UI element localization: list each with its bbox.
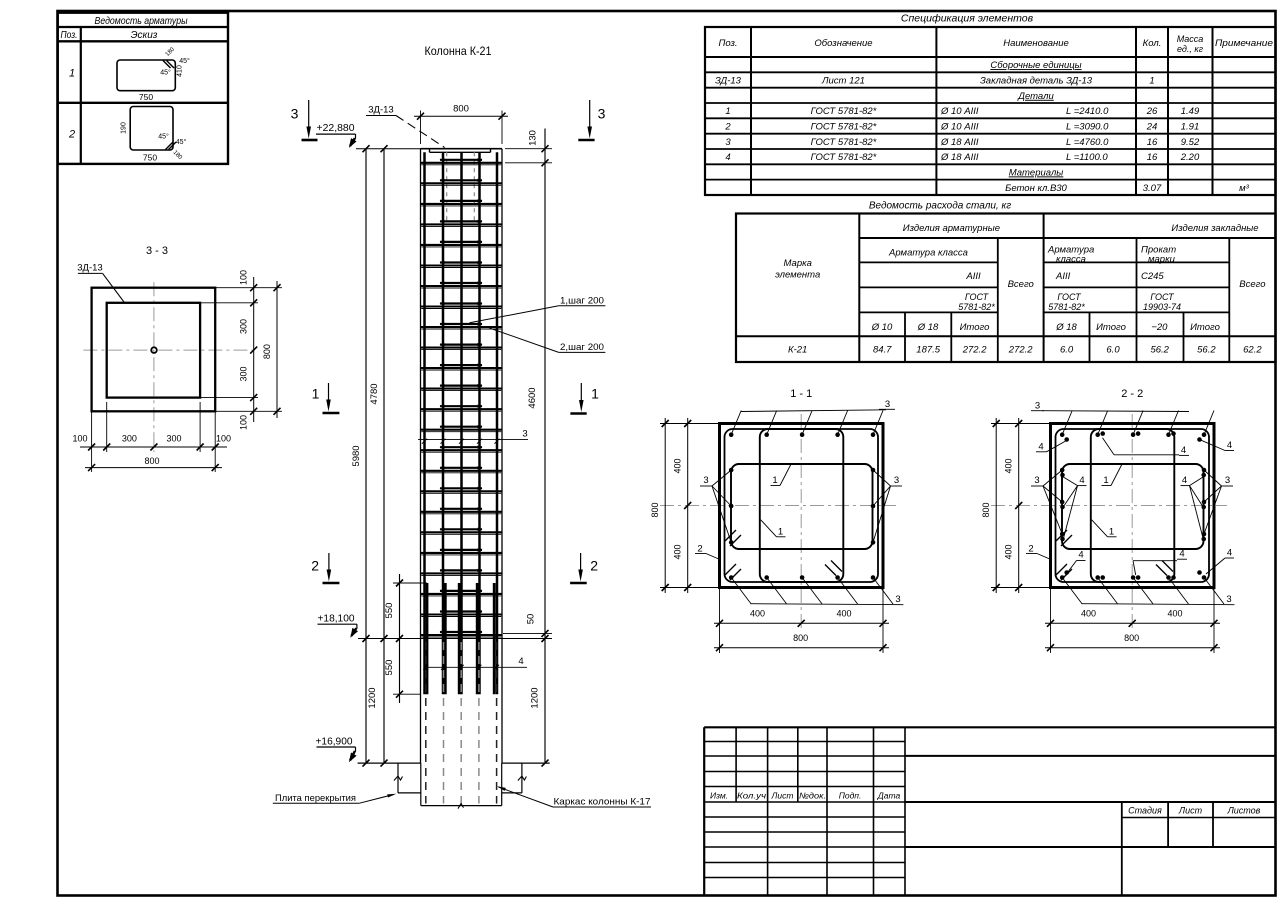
svg-text:130: 130 (527, 130, 538, 146)
svg-text:400: 400 (1167, 609, 1182, 619)
svg-text:3.07: 3.07 (1143, 183, 1162, 194)
svg-text:Стадия: Стадия (1128, 806, 1162, 816)
svg-text:190: 190 (121, 122, 128, 134)
svg-text:К-21: К-21 (788, 345, 807, 356)
svg-text:Изм.: Изм. (710, 791, 728, 801)
svg-text:100: 100 (216, 434, 231, 444)
svg-text:Эскиз: Эскиз (131, 30, 158, 41)
svg-text:Детали: Детали (1017, 91, 1054, 102)
svg-text:Арматура класса: Арматура класса (888, 248, 968, 259)
svg-text:300: 300 (122, 434, 137, 444)
svg-text:Дата: Дата (877, 791, 901, 801)
svg-text:Листов: Листов (1227, 806, 1261, 816)
svg-text:2: 2 (590, 558, 598, 574)
svg-text:3: 3 (1034, 475, 1039, 486)
svg-text:100: 100 (239, 270, 249, 285)
svg-text:Сборочные единицы: Сборочные единицы (990, 60, 1081, 71)
svg-text:Масса: Масса (1177, 34, 1204, 44)
svg-text:АIII: АIII (965, 271, 981, 282)
svg-text:3: 3 (1226, 594, 1231, 605)
svg-text:Подп.: Подп. (839, 791, 862, 801)
svg-text:400: 400 (1081, 609, 1096, 619)
svg-text:45°: 45° (160, 69, 171, 77)
svg-text:9.52: 9.52 (1181, 137, 1200, 148)
svg-text:ЗД-13: ЗД-13 (715, 76, 742, 87)
svg-text:Ведомость арматуры: Ведомость арматуры (95, 15, 188, 27)
svg-text:45°: 45° (176, 138, 187, 146)
svg-text:L =4760.0: L =4760.0 (1066, 137, 1109, 148)
svg-text:ГОСТ: ГОСТ (1057, 292, 1082, 302)
svg-text:800: 800 (262, 344, 272, 359)
svg-text:ГОСТ: ГОСТ (965, 292, 990, 302)
svg-text:Изделия закладные: Изделия закладные (1171, 223, 1258, 234)
svg-text:3: 3 (1225, 475, 1230, 486)
svg-text:400: 400 (673, 544, 683, 559)
svg-text:750: 750 (143, 153, 157, 163)
svg-text:187.5: 187.5 (916, 345, 940, 356)
svg-text:Ведомость расхода стали, кг: Ведомость расхода стали, кг (869, 201, 1011, 212)
svg-text:56.2: 56.2 (1197, 345, 1216, 356)
svg-text:Ø 10: Ø 10 (871, 322, 893, 333)
svg-text:100: 100 (72, 434, 87, 444)
svg-text:4780: 4780 (369, 383, 380, 404)
svg-text:1: 1 (69, 68, 75, 80)
svg-text:800: 800 (793, 633, 808, 643)
svg-text:Материалы: Материалы (1009, 167, 1064, 178)
svg-text:19903-74: 19903-74 (1143, 302, 1181, 312)
svg-text:Марка: Марка (784, 258, 812, 269)
svg-text:400: 400 (836, 609, 851, 619)
svg-text:4: 4 (725, 152, 730, 163)
svg-text:6.0: 6.0 (1060, 345, 1074, 356)
svg-text:800: 800 (1124, 633, 1139, 643)
svg-text:2 - 2: 2 - 2 (1121, 388, 1143, 400)
svg-text:1: 1 (1103, 475, 1108, 486)
svg-text:100: 100 (239, 415, 249, 430)
svg-text:24: 24 (1146, 122, 1158, 133)
svg-text:800: 800 (453, 104, 469, 115)
svg-text:1200: 1200 (367, 687, 378, 708)
svg-text:400: 400 (1004, 544, 1014, 559)
svg-text:26: 26 (1146, 106, 1158, 117)
svg-text:272.2: 272.2 (962, 345, 987, 356)
svg-text:Спецификация элементов: Спецификация элементов (901, 13, 1034, 25)
svg-text:4: 4 (1182, 475, 1187, 486)
svg-text:1 - 1: 1 - 1 (790, 388, 812, 400)
svg-text:3: 3 (894, 475, 899, 486)
svg-text:ГОСТ 5781-82*: ГОСТ 5781-82* (811, 122, 877, 133)
svg-text:3Д-13: 3Д-13 (368, 105, 393, 116)
svg-text:−20: −20 (1151, 322, 1168, 333)
svg-text:№док.: №док. (799, 791, 826, 801)
svg-text:Изделия арматурные: Изделия арматурные (903, 223, 1000, 234)
svg-text:400: 400 (1004, 458, 1014, 473)
svg-text:5781-82*: 5781-82* (958, 302, 995, 312)
svg-text:3: 3 (598, 106, 606, 122)
svg-text:550: 550 (384, 660, 395, 676)
svg-text:Ø 10 АIII: Ø 10 АIII (940, 106, 979, 117)
svg-text:4: 4 (1227, 440, 1232, 451)
svg-text:400: 400 (673, 458, 683, 473)
svg-text:84.7: 84.7 (873, 345, 892, 356)
svg-text:Плита перекрытия: Плита перекрытия (275, 793, 356, 804)
svg-text:4: 4 (1038, 442, 1043, 453)
svg-text:Колонна К-21: Колонна К-21 (425, 44, 492, 58)
svg-text:м³: м³ (1239, 183, 1250, 194)
svg-text:4: 4 (518, 656, 523, 667)
svg-text:300: 300 (166, 434, 181, 444)
svg-text:4: 4 (1078, 550, 1083, 561)
svg-text:Ø 18 АIII: Ø 18 АIII (940, 152, 979, 163)
svg-text:Лист: Лист (1178, 806, 1203, 816)
svg-text:Примечание: Примечание (1215, 38, 1273, 49)
svg-text:класса: класса (1056, 254, 1086, 265)
svg-text:С245: С245 (1141, 271, 1164, 282)
svg-text:3: 3 (522, 429, 527, 440)
svg-text:50: 50 (526, 614, 537, 625)
svg-text:3: 3 (725, 137, 731, 148)
svg-text:ГОСТ 5781-82*: ГОСТ 5781-82* (811, 152, 877, 163)
svg-text:3 - 3: 3 - 3 (146, 245, 168, 257)
svg-text:ГОСТ 5781-82*: ГОСТ 5781-82* (811, 137, 877, 148)
svg-text:16: 16 (1147, 152, 1158, 163)
svg-text:3: 3 (703, 475, 708, 486)
svg-text:45°: 45° (179, 57, 190, 65)
svg-text:1: 1 (1109, 526, 1114, 537)
svg-text:ГОСТ: ГОСТ (1150, 292, 1175, 302)
svg-text:45°: 45° (158, 133, 169, 141)
svg-text:Всего: Всего (1239, 279, 1265, 290)
svg-text:4: 4 (1181, 445, 1186, 456)
svg-text:Поз.: Поз. (718, 38, 737, 49)
svg-text:1: 1 (1149, 76, 1154, 87)
svg-text:АIII: АIII (1055, 271, 1071, 282)
svg-text:300: 300 (239, 319, 249, 334)
svg-text:272.2: 272.2 (1008, 345, 1033, 356)
svg-text:800: 800 (981, 502, 991, 517)
svg-text:Итого: Итого (1096, 322, 1126, 333)
svg-text:4: 4 (1179, 549, 1184, 560)
svg-text:1: 1 (772, 475, 777, 486)
svg-text:5980: 5980 (351, 445, 362, 466)
svg-text:300: 300 (239, 366, 249, 381)
svg-text:3: 3 (291, 106, 299, 122)
svg-text:1: 1 (591, 386, 599, 402)
svg-text:16: 16 (1147, 137, 1158, 148)
svg-text:+16,900: +16,900 (316, 736, 353, 747)
svg-text:Кол.уч: Кол.уч (737, 791, 767, 801)
svg-text:2,шаг 200: 2,шаг 200 (560, 342, 604, 353)
svg-text:550: 550 (384, 603, 395, 619)
svg-text:1.91: 1.91 (1181, 122, 1200, 133)
svg-text:Наименование: Наименование (1003, 38, 1069, 49)
svg-text:56.2: 56.2 (1150, 345, 1169, 356)
svg-text:410: 410 (177, 65, 184, 77)
svg-text:800: 800 (144, 456, 159, 466)
svg-text:марки: марки (1148, 254, 1176, 265)
svg-text:4: 4 (1227, 547, 1232, 558)
svg-text:1.49: 1.49 (1181, 106, 1200, 117)
svg-text:Итого: Итого (960, 322, 990, 333)
svg-text:4: 4 (1079, 475, 1084, 486)
svg-text:Кол.: Кол. (1143, 38, 1162, 49)
svg-text:Ø 10 АIII: Ø 10 АIII (940, 122, 979, 133)
svg-text:ГОСТ 5781-82*: ГОСТ 5781-82* (811, 106, 877, 117)
svg-text:Всего: Всего (1008, 279, 1034, 290)
svg-text:2: 2 (724, 122, 731, 133)
svg-text:1: 1 (778, 526, 783, 537)
svg-text:2.20: 2.20 (1180, 152, 1200, 163)
svg-text:L =3090.0: L =3090.0 (1066, 122, 1109, 133)
svg-text:2: 2 (1028, 543, 1033, 554)
svg-text:L =2410.0: L =2410.0 (1066, 106, 1109, 117)
svg-text:62.2: 62.2 (1243, 345, 1262, 356)
svg-text:3: 3 (1035, 401, 1040, 412)
svg-text:+18,100: +18,100 (318, 613, 355, 624)
svg-text:3: 3 (895, 594, 900, 605)
svg-text:Бетон кл.В30: Бетон кл.В30 (1005, 183, 1067, 194)
svg-text:800: 800 (650, 502, 660, 517)
svg-text:Лист: Лист (771, 791, 794, 801)
svg-text:Поз.: Поз. (61, 30, 78, 41)
svg-text:Каркас колонны К-17: Каркас колонны К-17 (554, 797, 651, 808)
svg-text:+22,880: +22,880 (317, 123, 355, 134)
svg-text:элемента: элемента (775, 270, 820, 281)
svg-text:Закладная деталь ЗД-13: Закладная деталь ЗД-13 (980, 76, 1093, 87)
svg-text:Обозначение: Обозначение (814, 38, 872, 49)
svg-text:ед., кг: ед., кг (1177, 44, 1204, 54)
svg-text:2: 2 (68, 129, 75, 141)
svg-text:750: 750 (139, 92, 153, 102)
svg-text:Итого: Итого (1190, 322, 1220, 333)
svg-text:1200: 1200 (530, 687, 541, 708)
svg-text:2: 2 (697, 543, 702, 554)
svg-text:5781-82*: 5781-82* (1048, 302, 1085, 312)
svg-text:400: 400 (750, 609, 765, 619)
svg-text:3Д-13: 3Д-13 (77, 263, 102, 274)
svg-text:L =1100.0: L =1100.0 (1066, 152, 1108, 163)
svg-text:1: 1 (725, 106, 730, 117)
svg-text:Ø 18: Ø 18 (917, 322, 939, 333)
svg-text:2: 2 (311, 558, 319, 574)
svg-text:Лист 121: Лист 121 (821, 76, 865, 87)
svg-text:1: 1 (312, 386, 320, 402)
svg-text:1,шаг 200: 1,шаг 200 (560, 295, 604, 306)
svg-text:3: 3 (885, 399, 890, 410)
svg-text:6.0: 6.0 (1106, 345, 1120, 356)
svg-text:Ø 18: Ø 18 (1055, 322, 1077, 333)
svg-text:4600: 4600 (527, 387, 538, 408)
svg-text:Ø 18 АIII: Ø 18 АIII (940, 137, 979, 148)
